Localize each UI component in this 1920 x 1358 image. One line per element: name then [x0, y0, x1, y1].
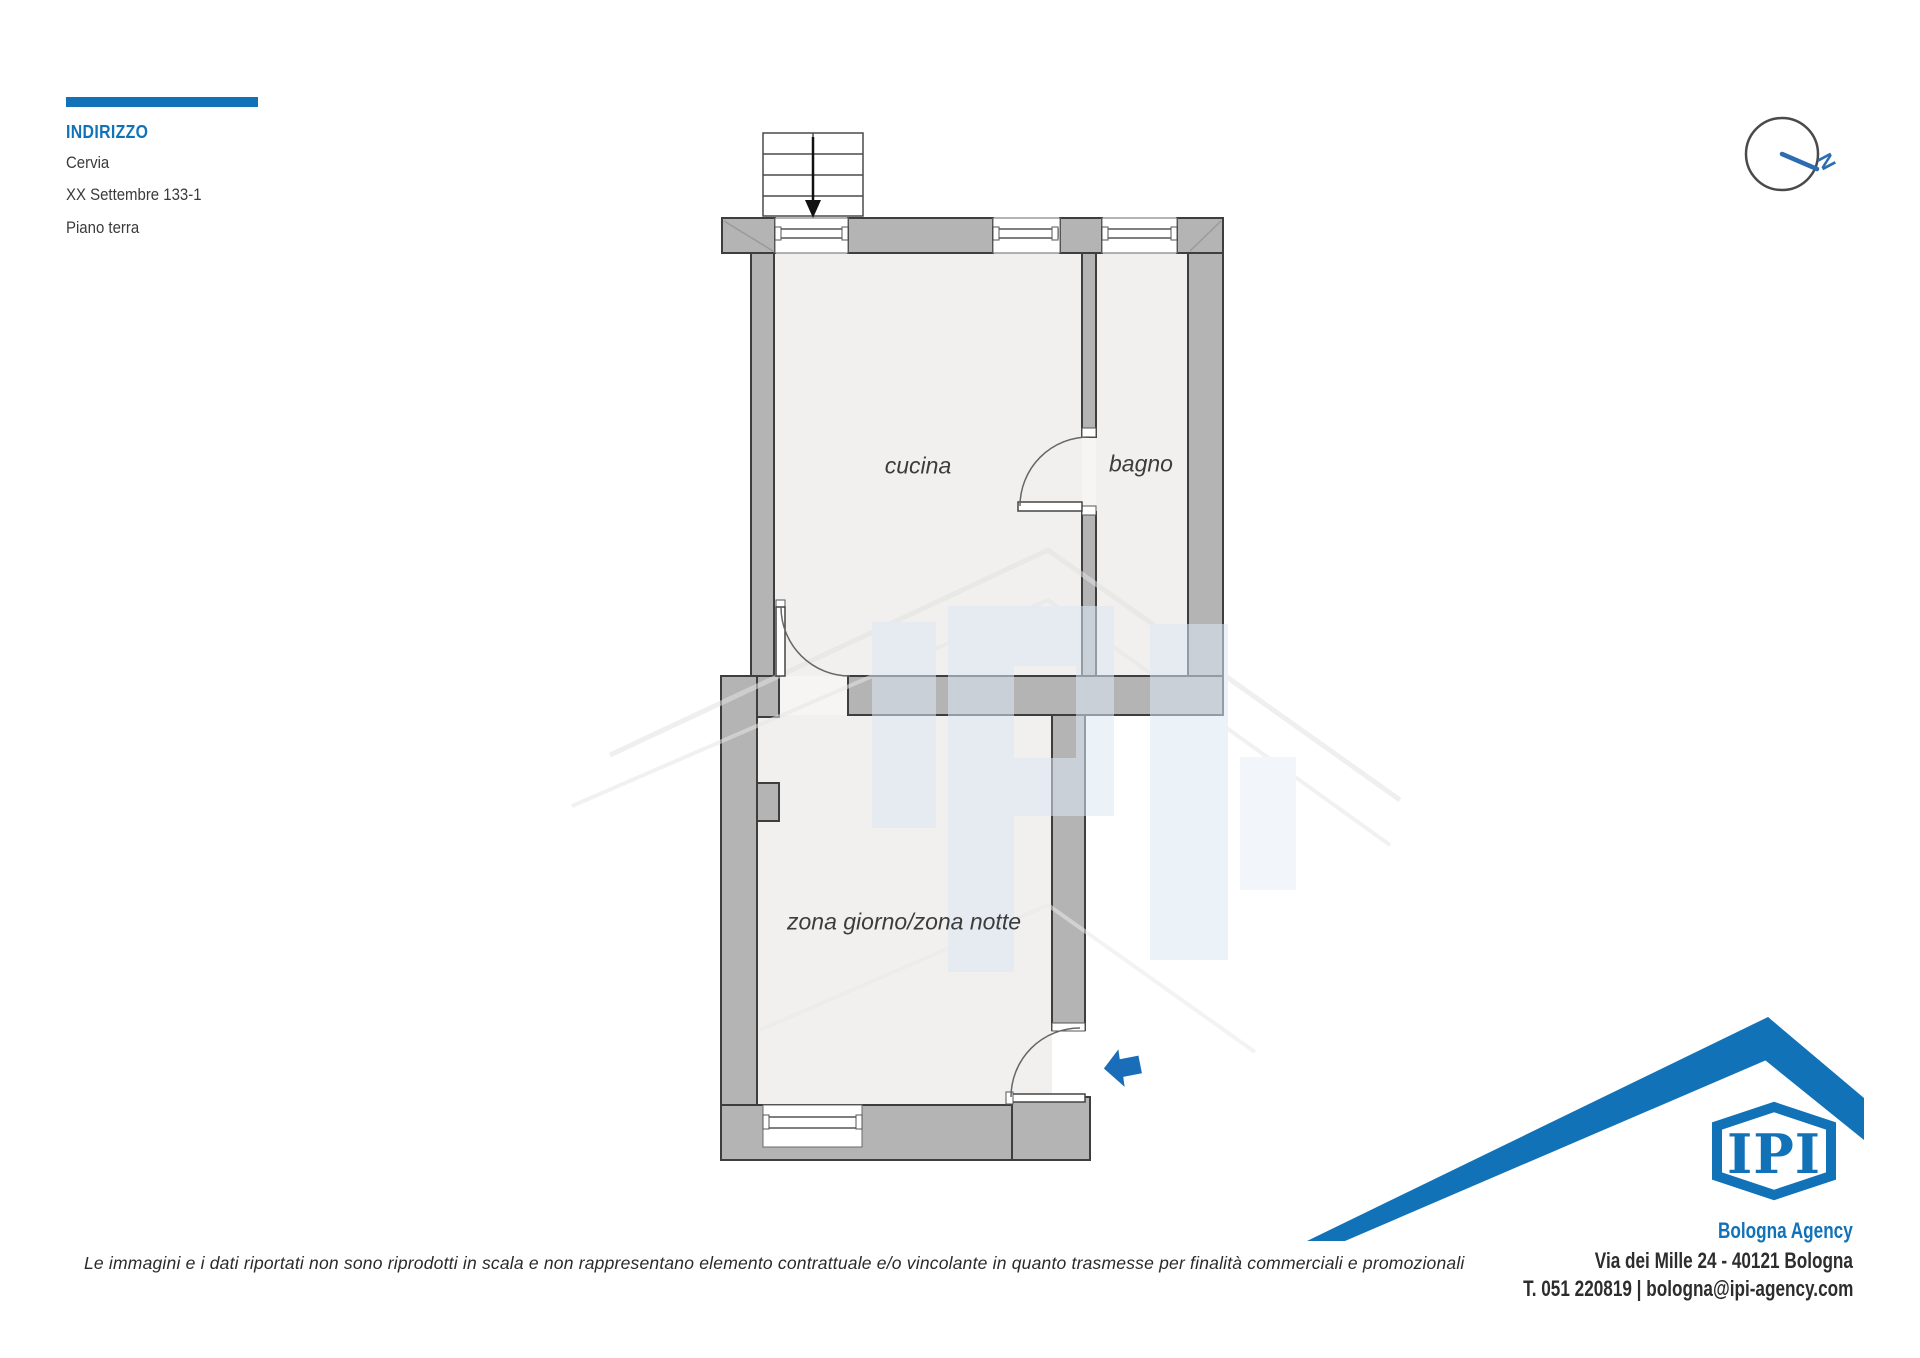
address-street: XX Settembre 133-1	[66, 185, 202, 205]
agency-contact: T. 051 220819 | bologna@ipi-agency.com	[1523, 1276, 1853, 1302]
wall-left-pier-2	[757, 783, 779, 821]
kitchen-door-leaf	[776, 607, 785, 676]
wall-top-corner-right	[1177, 218, 1223, 253]
window-top-2	[993, 218, 1060, 253]
watermark-fragment	[1240, 757, 1296, 890]
agency-address: Via dei Mille 24 - 40121 Bologna	[1595, 1248, 1853, 1274]
window-top-1	[775, 218, 848, 253]
entrance-door-leaf	[1008, 1094, 1085, 1102]
agency-name: Bologna Agency	[1718, 1218, 1853, 1244]
window-bottom	[763, 1105, 862, 1147]
bathroom-doorway-floor	[1082, 437, 1096, 512]
address-city: Cervia	[66, 153, 109, 173]
room-label-living: zona giorno/zona notte	[787, 909, 1021, 936]
stairs-icon	[763, 133, 863, 218]
disclaimer-text: Le immagini e i dati riportati non sono …	[84, 1253, 1465, 1274]
window-top-3	[1102, 218, 1177, 253]
wall-top-segment	[848, 218, 993, 253]
compass-icon	[1746, 118, 1818, 190]
logo-monogram: IPI	[1727, 1122, 1821, 1186]
wall-divider-upper	[1082, 253, 1096, 437]
address-section-label: INDIRIZZO	[66, 122, 148, 143]
kitchen-doorway-floor	[774, 676, 848, 715]
watermark-letter-i-right	[1150, 624, 1228, 960]
wall-bottom-corner-right	[1012, 1097, 1090, 1160]
watermark-letter-i-left	[872, 622, 936, 828]
bathroom-door-leaf	[1018, 502, 1082, 511]
room-label-bathroom: bagno	[1109, 451, 1173, 478]
entrance-arrow-icon	[1102, 1047, 1144, 1090]
header-accent-bar	[66, 97, 258, 107]
entrance-doorway-floor	[1052, 1030, 1085, 1097]
floorplan-page: IPI INDIRIZZO Cervia XX Settembre 133-1 …	[0, 0, 1920, 1358]
wall-left-upper	[751, 253, 774, 676]
address-floor: Piano terra	[66, 218, 139, 238]
room-label-kitchen: cucina	[885, 453, 951, 480]
wall-top-pillar	[1060, 218, 1102, 253]
wall-left-lower	[721, 676, 757, 1160]
agency-logo: IPI	[1307, 1017, 1864, 1241]
floorplan-canvas: IPI	[0, 0, 1920, 1358]
